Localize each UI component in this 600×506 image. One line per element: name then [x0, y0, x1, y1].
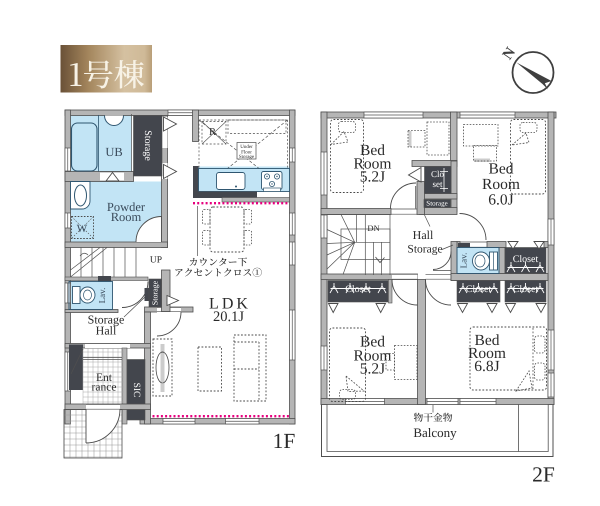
svg-text:Under: Under [240, 144, 253, 150]
svg-text:Storage: Storage [239, 154, 255, 160]
svg-text:Room: Room [111, 210, 142, 224]
svg-text:UP: UP [150, 256, 162, 266]
svg-text:5.2J: 5.2J [360, 169, 385, 186]
svg-text:Lav.: Lav. [97, 288, 107, 304]
svg-text:rance: rance [92, 382, 117, 394]
svg-text:R: R [209, 127, 216, 138]
svg-text:DN: DN [367, 223, 379, 233]
svg-text:Storage: Storage [407, 244, 442, 256]
svg-text:SIC: SIC [131, 383, 141, 398]
svg-text:Storage: Storage [142, 130, 153, 161]
svg-text:Lav.: Lav. [459, 253, 469, 269]
svg-text:Clo: Clo [431, 169, 445, 179]
svg-text:Hall: Hall [96, 324, 117, 338]
svg-text:Storage: Storage [150, 280, 159, 305]
svg-text:Bed: Bed [489, 161, 514, 178]
svg-text:6.8J: 6.8J [474, 358, 499, 375]
svg-text:6.0J: 6.0J [488, 192, 513, 209]
svg-text:set: set [433, 179, 443, 189]
svg-text:UB: UB [105, 145, 122, 159]
svg-text:W: W [77, 223, 88, 235]
svg-text:2F: 2F [532, 463, 555, 487]
svg-text:Closet: Closet [345, 284, 371, 295]
svg-text:Balcony: Balcony [413, 425, 457, 440]
svg-text:1F: 1F [273, 429, 296, 453]
svg-text:20.1J: 20.1J [213, 309, 244, 325]
svg-text:5.2J: 5.2J [360, 361, 385, 378]
svg-text:Storage: Storage [426, 200, 447, 208]
svg-text:Hall: Hall [413, 228, 434, 242]
svg-text:Room: Room [482, 176, 520, 193]
